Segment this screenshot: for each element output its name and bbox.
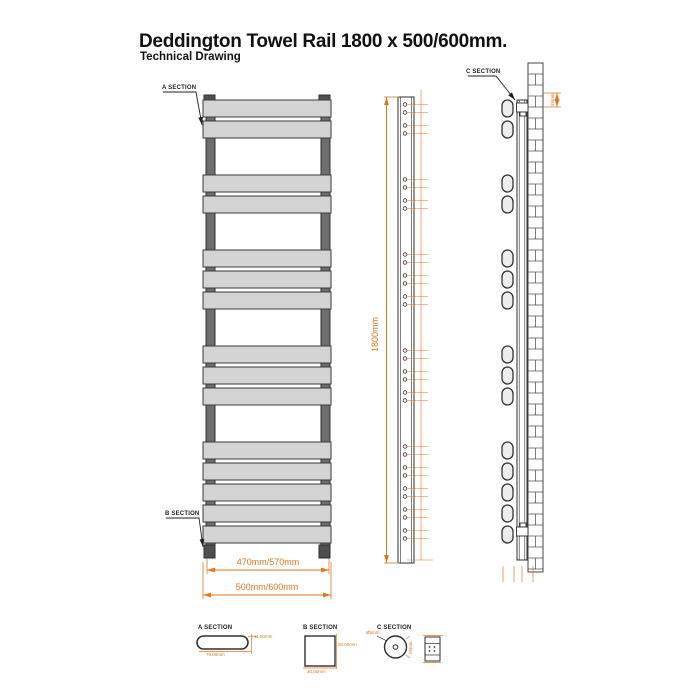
section-c-hole-dia: Ø5mm	[366, 630, 380, 635]
section-a-detail-label: A SECTION	[198, 625, 232, 631]
panel-end	[502, 367, 513, 384]
section-a-thickness: 11.00mm	[254, 634, 272, 639]
panel-end	[502, 175, 513, 192]
panel	[203, 367, 331, 384]
panel	[203, 100, 331, 117]
panel-end	[502, 346, 513, 363]
section-details	[197, 634, 443, 669]
panel	[203, 505, 331, 522]
panel	[203, 271, 331, 288]
panel-end	[502, 442, 513, 459]
panel	[203, 346, 331, 363]
page-subtitle: Technical Drawing	[140, 51, 241, 63]
section-b-callout-label: B SECTION	[165, 511, 199, 517]
panel-end	[502, 271, 513, 288]
section-c-outer-dia: 55mm	[408, 641, 413, 654]
panel	[203, 196, 331, 213]
section-b-detail-label: B SECTION	[303, 625, 337, 631]
panel	[203, 250, 331, 267]
wall-mount-view	[468, 63, 561, 582]
panel-end	[502, 100, 513, 117]
section-a-width: 70.00mm	[206, 652, 225, 657]
section-c-callout-label: C SECTION	[466, 69, 500, 75]
panel	[203, 292, 331, 309]
section-b-height: 30.00mm	[338, 642, 357, 647]
drawing-canvas	[0, 0, 700, 700]
panel-end	[502, 484, 513, 501]
panel-end	[502, 526, 513, 543]
section-c-detail-label: C SECTION	[377, 625, 411, 631]
dim-height: 1800mm	[370, 317, 380, 352]
panel-end	[502, 196, 513, 213]
front-view	[163, 92, 331, 599]
panel	[203, 442, 331, 459]
panel	[203, 388, 331, 405]
panel	[203, 526, 331, 543]
panel-end	[502, 505, 513, 522]
dim-bracket: 55mm	[550, 93, 555, 106]
technical-drawing-page: Deddington Towel Rail 1800 x 500/600mm. …	[0, 0, 700, 700]
dim-inner-width: 470mm/570mm	[204, 557, 332, 567]
panel-end	[502, 388, 513, 405]
section-a-callout-label: A SECTION	[162, 85, 196, 91]
dim-outer-width: 500mm/600mm	[203, 582, 331, 592]
panel-end	[502, 121, 513, 138]
panel	[203, 175, 331, 192]
panel	[203, 463, 331, 480]
page-title: Deddington Towel Rail 1800 x 500/600mm.	[139, 31, 507, 53]
panel	[203, 484, 331, 501]
panel-end	[502, 292, 513, 309]
panel-end	[502, 463, 513, 480]
panel-end	[502, 250, 513, 267]
section-b-width: 30.00mm	[307, 669, 326, 674]
panel	[203, 121, 331, 138]
side-profile-view	[384, 90, 433, 563]
